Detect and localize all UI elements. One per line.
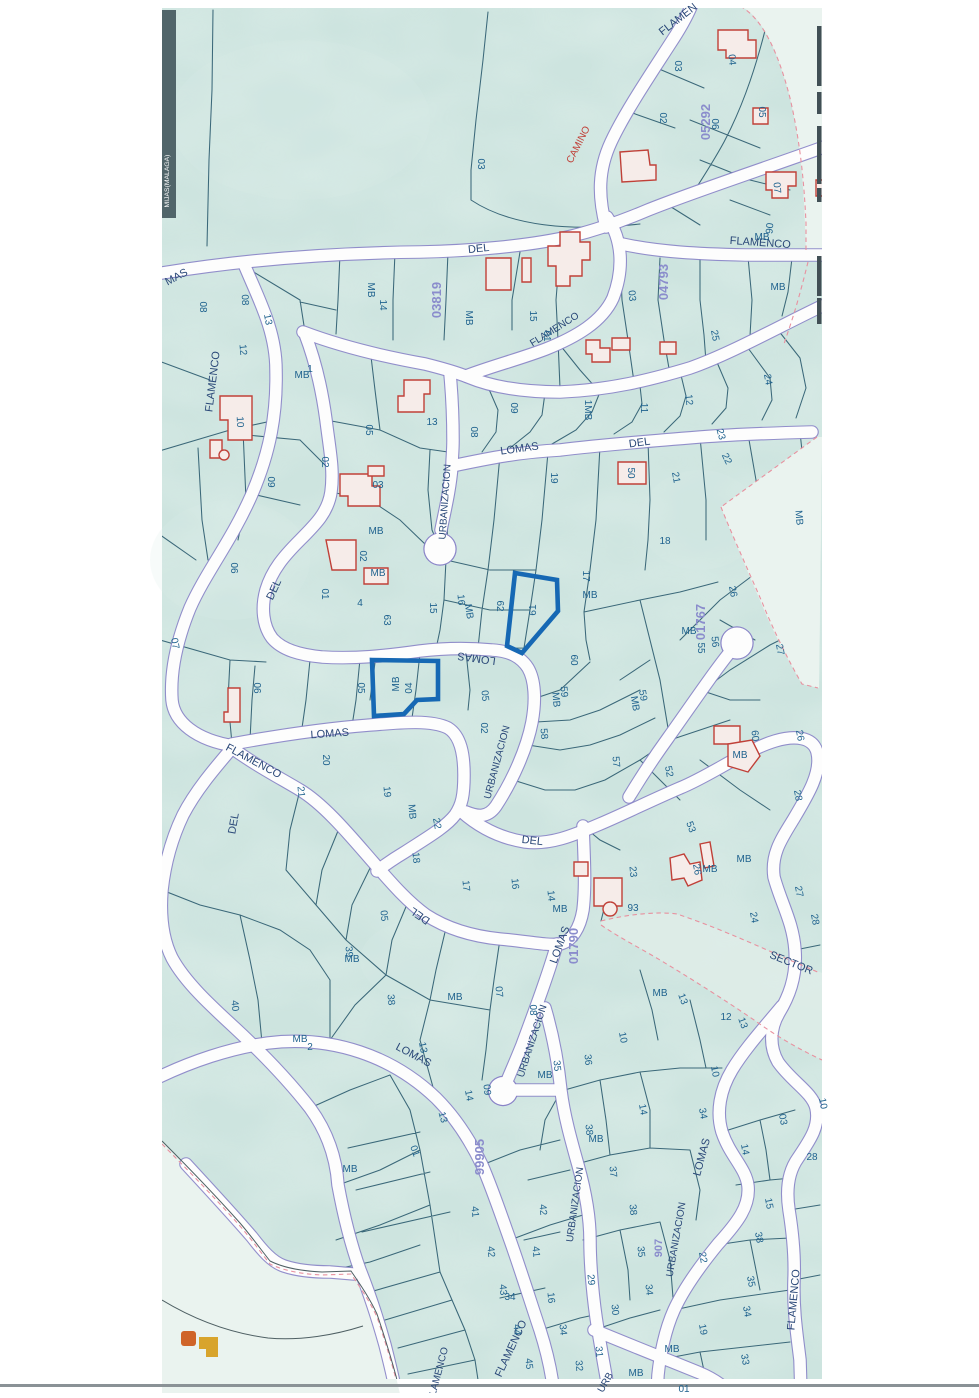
svg-text:13: 13 [426, 417, 438, 428]
svg-text:MB: MB [583, 590, 598, 601]
svg-text:19: 19 [381, 786, 393, 798]
svg-text:08: 08 [527, 1004, 538, 1016]
svg-text:41: 41 [469, 1206, 481, 1218]
svg-text:57: 57 [610, 756, 622, 768]
svg-text:45: 45 [523, 1358, 535, 1370]
svg-text:04: 04 [404, 682, 415, 694]
svg-text:4: 4 [357, 598, 363, 609]
svg-text:MB: MB [771, 282, 786, 293]
svg-text:03: 03 [475, 158, 486, 170]
svg-text:43: 43 [497, 1284, 509, 1296]
svg-text:23: 23 [627, 866, 639, 878]
svg-text:44: 44 [511, 1324, 523, 1336]
svg-text:04: 04 [726, 54, 738, 66]
svg-text:40: 40 [229, 1000, 241, 1012]
svg-text:1: 1 [307, 364, 313, 375]
svg-text:MB: MB [737, 854, 752, 865]
svg-text:38: 38 [385, 994, 397, 1006]
svg-text:03: 03 [626, 290, 638, 302]
svg-text:41: 41 [530, 1246, 542, 1258]
svg-text:14: 14 [377, 299, 388, 311]
svg-text:42: 42 [537, 1204, 549, 1216]
svg-text:28: 28 [806, 1152, 818, 1163]
svg-text:01790: 01790 [566, 928, 581, 964]
svg-text:06: 06 [228, 562, 239, 574]
svg-text:56: 56 [709, 636, 721, 648]
svg-text:32: 32 [573, 1360, 585, 1372]
svg-text:02: 02 [657, 112, 668, 124]
svg-text:17: 17 [460, 880, 472, 892]
svg-text:MB: MB [733, 750, 748, 761]
svg-text:04793: 04793 [656, 264, 671, 300]
svg-text:05: 05 [378, 910, 390, 922]
svg-text:MB: MB [448, 992, 463, 1003]
svg-text:14: 14 [545, 890, 557, 902]
svg-text:34: 34 [643, 1284, 655, 1296]
svg-text:08: 08 [468, 426, 479, 438]
svg-text:03: 03 [372, 480, 384, 491]
svg-text:02: 02 [357, 550, 368, 562]
svg-text:05: 05 [355, 682, 366, 694]
svg-text:12: 12 [720, 1012, 732, 1023]
svg-text:08: 08 [239, 294, 250, 306]
svg-text:DEL: DEL [467, 242, 490, 256]
svg-text:62: 62 [494, 600, 505, 612]
svg-text:93: 93 [627, 903, 639, 914]
svg-text:08: 08 [197, 301, 208, 313]
svg-text:MIJAS(MALAGA): MIJAS(MALAGA) [164, 155, 171, 208]
svg-text:38: 38 [627, 1204, 639, 1216]
svg-text:60: 60 [749, 730, 761, 742]
svg-text:MB: MB [371, 568, 386, 579]
svg-text:DEL: DEL [521, 834, 544, 848]
svg-text:20: 20 [320, 754, 331, 766]
svg-text:2: 2 [307, 1042, 313, 1053]
svg-text:18: 18 [659, 536, 671, 547]
svg-text:02: 02 [478, 722, 489, 734]
svg-text:58: 58 [538, 728, 550, 740]
svg-text:MB: MB [365, 283, 376, 298]
svg-text:34: 34 [557, 1324, 569, 1336]
svg-text:MB: MB [665, 1344, 680, 1355]
svg-text:MB: MB [549, 692, 561, 708]
svg-text:30: 30 [609, 1304, 621, 1316]
svg-text:MB: MB [553, 904, 568, 915]
svg-text:15: 15 [527, 310, 538, 322]
svg-text:55: 55 [695, 642, 706, 654]
svg-text:07: 07 [493, 986, 505, 998]
svg-text:09: 09 [481, 1084, 493, 1096]
svg-text:35: 35 [635, 1246, 647, 1258]
svg-text:MB: MB [391, 676, 402, 691]
svg-text:02: 02 [319, 456, 330, 468]
svg-text:MB: MB [682, 626, 697, 637]
svg-text:MB: MB [345, 954, 360, 965]
svg-text:06: 06 [709, 118, 720, 130]
svg-text:03819: 03819 [429, 282, 444, 318]
svg-text:MB: MB [792, 510, 804, 526]
svg-text:99905: 99905 [472, 1139, 487, 1175]
svg-text:MB: MB [629, 1368, 644, 1379]
svg-text:MB: MB [343, 1164, 358, 1175]
svg-text:12: 12 [683, 394, 695, 406]
svg-text:MB: MB [369, 526, 384, 537]
svg-text:01: 01 [319, 588, 330, 600]
svg-text:06: 06 [251, 682, 262, 694]
svg-text:01: 01 [678, 1384, 690, 1393]
svg-text:36: 36 [582, 1054, 594, 1066]
svg-text:18: 18 [410, 852, 422, 864]
svg-text:21: 21 [295, 786, 307, 798]
svg-text:MB: MB [293, 1034, 308, 1045]
svg-text:1MB: 1MB [582, 400, 593, 421]
svg-text:01: 01 [541, 330, 552, 342]
svg-text:10: 10 [234, 416, 245, 428]
svg-text:19: 19 [548, 472, 559, 484]
svg-text:15: 15 [427, 602, 438, 614]
svg-text:63: 63 [381, 614, 392, 626]
svg-text:05: 05 [756, 106, 767, 118]
svg-text:42: 42 [485, 1246, 497, 1258]
svg-text:MB: MB [538, 1070, 553, 1081]
svg-text:907: 907 [653, 1239, 665, 1257]
svg-text:MB: MB [463, 311, 474, 326]
svg-text:MB: MB [703, 864, 718, 875]
svg-text:05: 05 [479, 690, 491, 702]
svg-text:MB: MB [405, 804, 417, 820]
svg-text:MB: MB [755, 232, 770, 243]
svg-text:MB: MB [653, 988, 668, 999]
svg-text:61: 61 [528, 604, 539, 616]
svg-text:31: 31 [593, 1346, 605, 1358]
svg-text:MB: MB [589, 1134, 604, 1145]
svg-text:16: 16 [545, 1292, 557, 1304]
svg-text:07: 07 [771, 182, 783, 194]
svg-text:17: 17 [580, 570, 591, 582]
svg-text:50: 50 [625, 467, 636, 479]
svg-text:60: 60 [568, 654, 579, 666]
svg-text:29: 29 [585, 1274, 597, 1286]
svg-text:12: 12 [237, 344, 249, 356]
svg-text:16: 16 [509, 878, 521, 890]
svg-text:03: 03 [672, 60, 683, 72]
svg-text:09: 09 [508, 402, 519, 414]
svg-text:09: 09 [265, 476, 276, 488]
svg-text:37: 37 [607, 1166, 619, 1178]
svg-text:11: 11 [638, 403, 649, 414]
svg-text:05: 05 [363, 424, 374, 436]
